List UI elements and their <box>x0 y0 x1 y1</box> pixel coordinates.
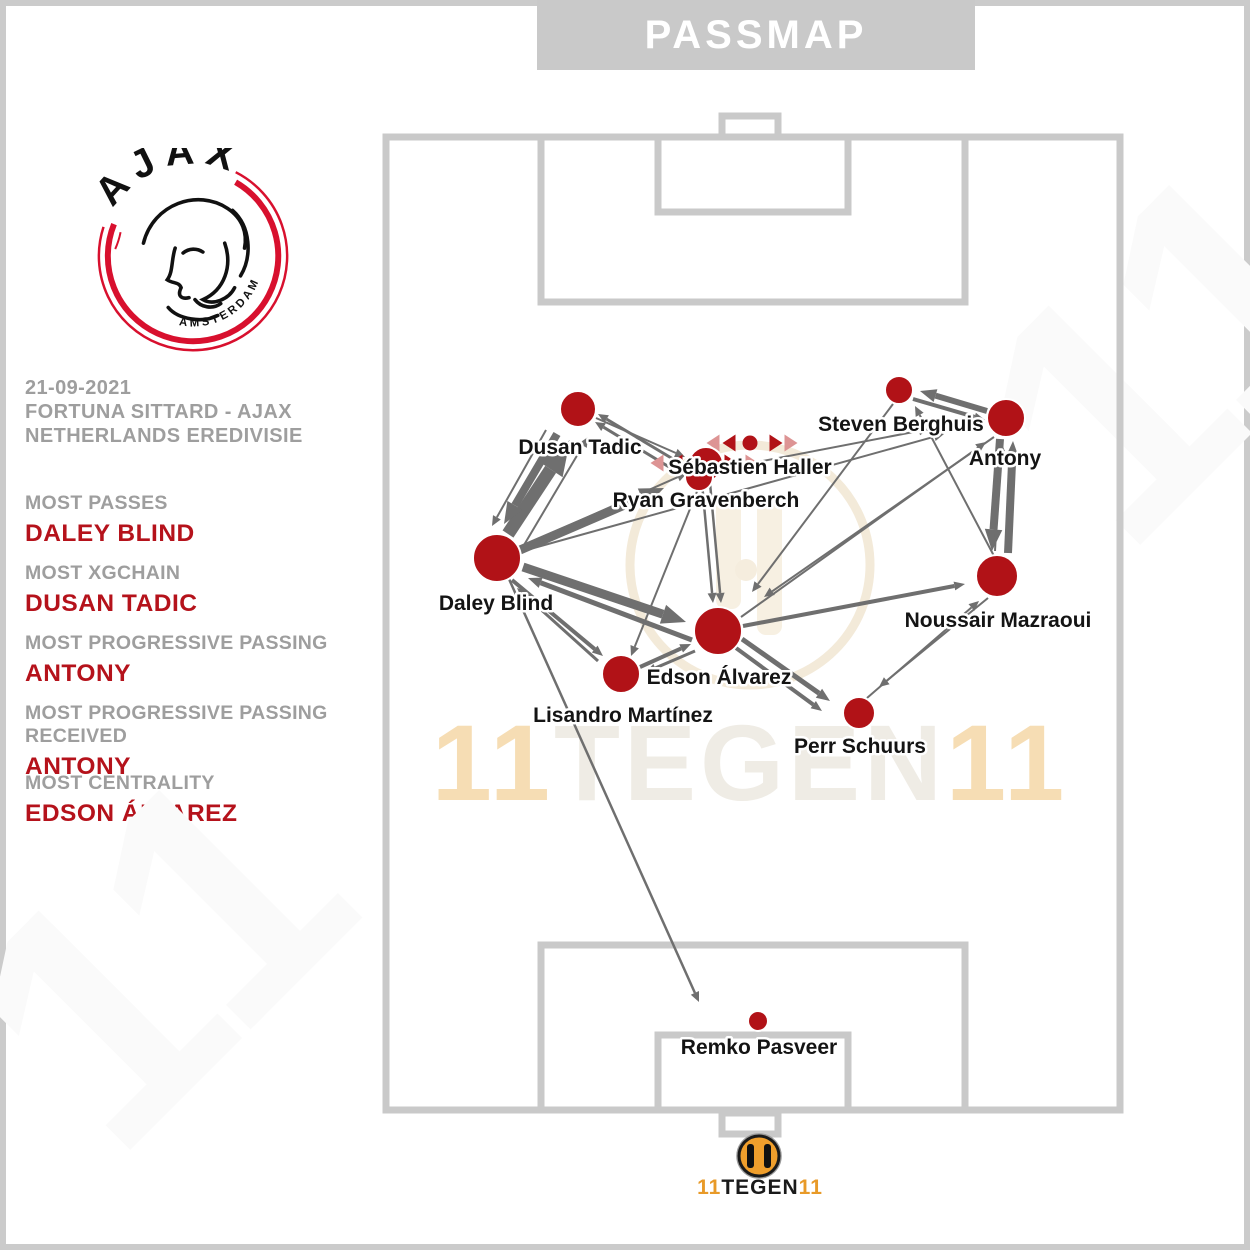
stat-most-progressive-passing-received: MOST PROGRESSIVE PASSING RECEIVED ANTONY <box>25 702 395 781</box>
stat-most-passes: MOST PASSES DALEY BLIND <box>25 492 195 548</box>
crest-club-name: AJAX <box>86 148 248 214</box>
wordmark-mid: TEGEN <box>721 1176 798 1199</box>
stat-label: MOST PROGRESSIVE PASSING <box>25 632 328 655</box>
tegen11-wordmark: 11TEGEN11 <box>610 1176 910 1200</box>
stat-value: DUSAN TADIC <box>25 590 197 618</box>
stat-value: DALEY BLIND <box>25 520 195 548</box>
match-competition: NETHERLANDS EREDIVISIE <box>25 424 303 448</box>
match-fixture: FORTUNA SITTARD - AJAX <box>25 400 303 424</box>
match-date: 21-09-2021 <box>25 376 303 400</box>
stat-value: EDSON ÁLVAREZ <box>25 800 238 828</box>
stat-value: ANTONY <box>25 660 328 688</box>
stat-label: MOST XGCHAIN <box>25 562 197 585</box>
ajax-crest: AJAX AMSTERDAM <box>84 148 302 368</box>
passmap-infographic: PASSMAP AJAX AMSTERDAM 21-09-2021 <box>0 0 1250 1250</box>
crest-inner-ring <box>108 182 278 341</box>
stat-label: MOST PROGRESSIVE PASSING RECEIVED <box>25 702 395 748</box>
wordmark-first: 11 <box>697 1176 721 1199</box>
match-info: 21-09-2021 FORTUNA SITTARD - AJAX NETHER… <box>25 376 303 448</box>
svg-text:AJAX: AJAX <box>86 148 248 214</box>
wordmark-last: 11 <box>799 1176 823 1199</box>
stat-label: MOST CENTRALITY <box>25 772 238 795</box>
stat-label: MOST PASSES <box>25 492 195 515</box>
title-banner: PASSMAP <box>537 0 975 70</box>
stat-most-xgchain: MOST XGCHAIN DUSAN TADIC <box>25 562 197 618</box>
stat-most-centrality: MOST CENTRALITY EDSON ÁLVAREZ <box>25 772 238 828</box>
stat-most-progressive-passing: MOST PROGRESSIVE PASSING ANTONY <box>25 632 328 688</box>
crest-warrior-figure <box>143 200 248 320</box>
page-title: PASSMAP <box>645 13 868 58</box>
